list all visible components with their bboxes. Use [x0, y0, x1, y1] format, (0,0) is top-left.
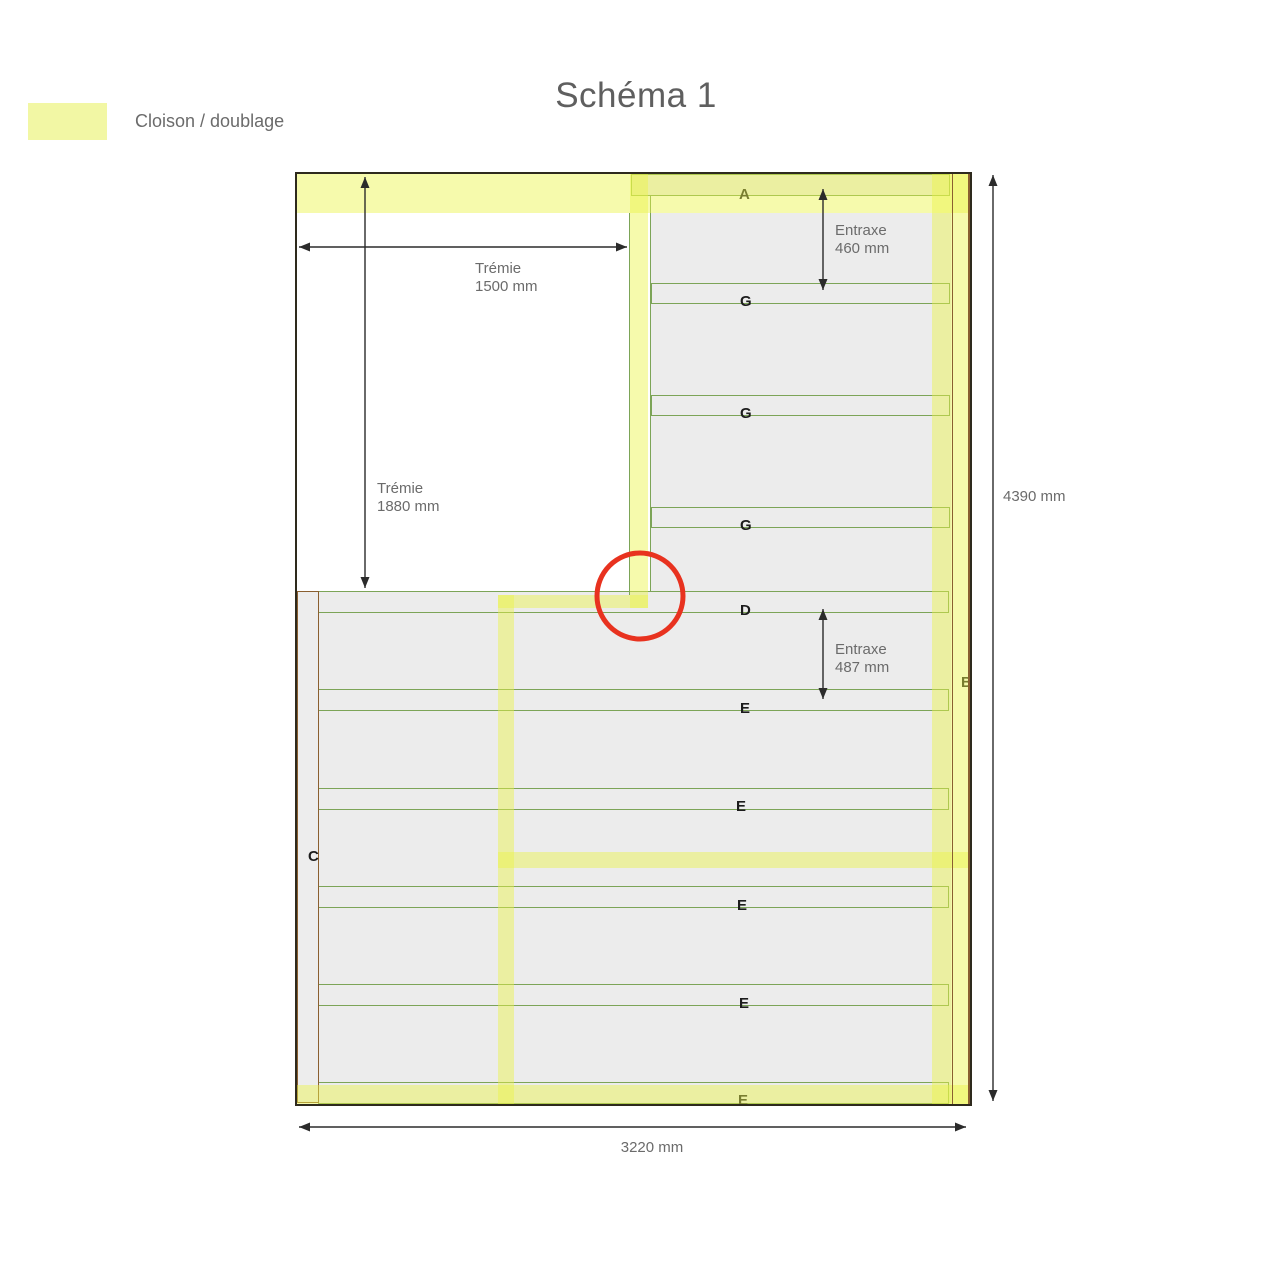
- page-title: Schéma 1: [436, 76, 836, 116]
- arrowhead-icon: [955, 1123, 966, 1132]
- dimension-label-entraxe-487: Entraxe487 mm: [835, 641, 889, 677]
- frame: [295, 172, 972, 1106]
- dimension-label-width-3220: 3220 mm: [621, 1139, 684, 1157]
- dimension-label-tremie-1500: Trémie1500 mm: [475, 260, 538, 296]
- legend-label: Cloison / doublage: [135, 111, 284, 132]
- schematic-page: Schéma 1 Cloison / doublage AGGGDEEEEECB…: [0, 0, 1270, 1270]
- arrowhead-icon: [989, 175, 998, 186]
- arrowhead-icon: [989, 1090, 998, 1101]
- legend-swatch: [28, 103, 107, 140]
- dimension-label-height-4390: 4390 mm: [1003, 488, 1066, 506]
- dimension-label-entraxe-460: Entraxe460 mm: [835, 222, 889, 258]
- dimension-label-tremie-1880: Trémie1880 mm: [377, 480, 440, 516]
- arrowhead-icon: [299, 1123, 310, 1132]
